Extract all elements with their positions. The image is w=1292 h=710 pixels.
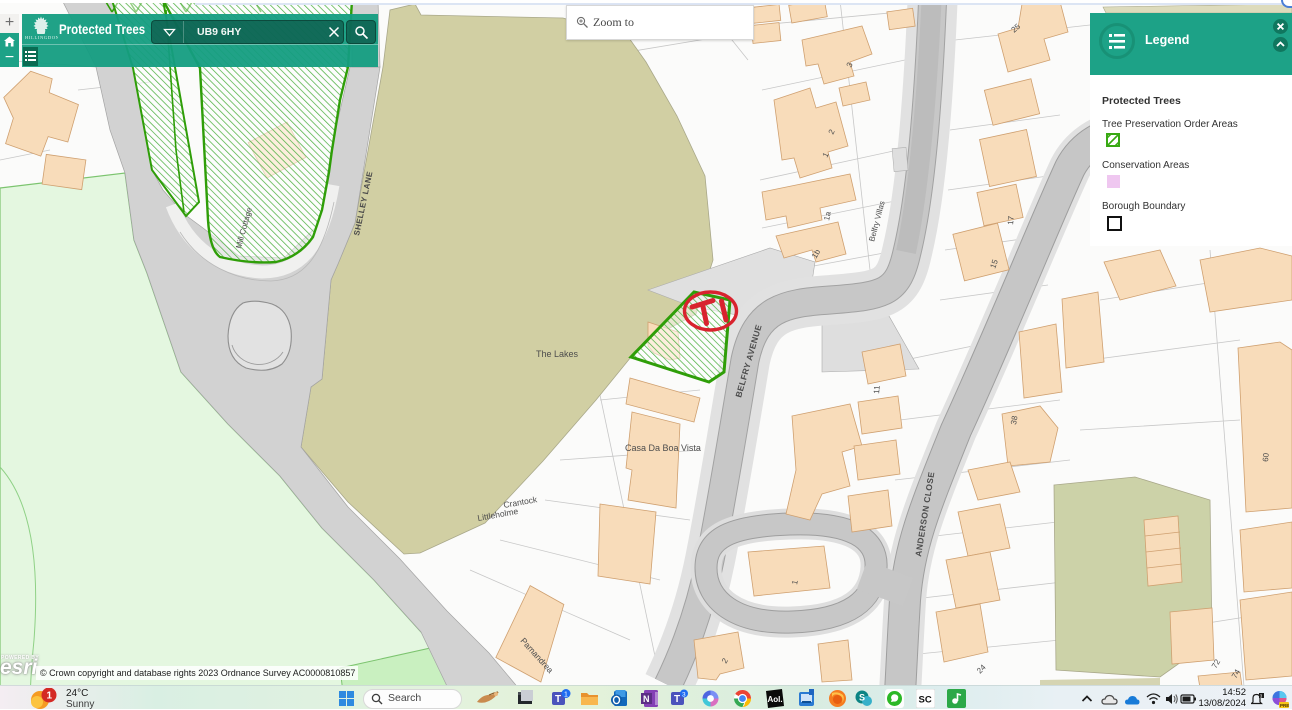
svg-text:1: 1 (564, 692, 568, 699)
svg-text:1: 1 (47, 691, 53, 702)
svg-text:SC: SC (919, 695, 932, 706)
svg-text:N: N (643, 694, 650, 704)
svg-text:T: T (555, 694, 561, 705)
svg-text:Casa Da Boa Vista: Casa Da Boa Vista (625, 443, 701, 453)
svg-text:17: 17 (1006, 215, 1016, 225)
svg-text:3: 3 (682, 692, 686, 699)
svg-text:HILLINGDON: HILLINGDON (25, 35, 58, 40)
svg-text:PRE: PRE (1280, 703, 1289, 708)
svg-text:S: S (859, 693, 865, 703)
svg-text:Aol.: Aol. (768, 695, 783, 704)
svg-text:The Lakes: The Lakes (536, 349, 579, 359)
svg-text:60: 60 (1261, 452, 1271, 462)
svg-text:T: T (674, 694, 680, 705)
svg-text:11: 11 (872, 385, 882, 395)
